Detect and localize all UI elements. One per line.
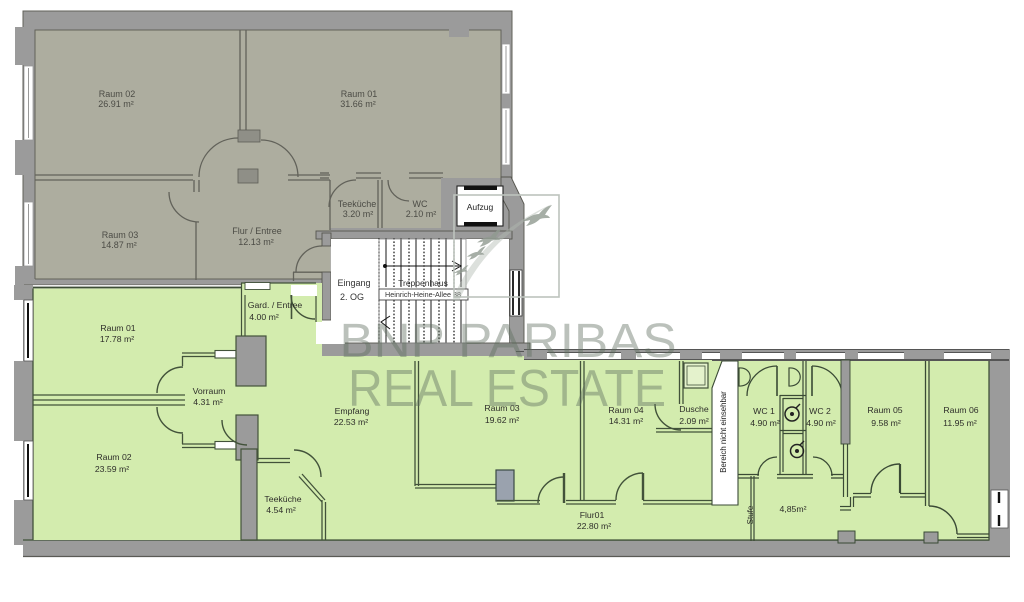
svg-text:Raum 02: Raum 02	[96, 452, 131, 462]
svg-text:Raum 01: Raum 01	[100, 323, 135, 333]
svg-text:4.54 m²: 4.54 m²	[266, 505, 296, 515]
svg-text:26.91 m²: 26.91 m²	[98, 99, 134, 109]
svg-text:Vorraum: Vorraum	[193, 386, 226, 396]
svg-text:2. OG: 2. OG	[340, 292, 364, 302]
svg-text:Raum 06: Raum 06	[943, 405, 978, 415]
svg-text:2.09 m²: 2.09 m²	[679, 416, 709, 426]
svg-text:Raum 01: Raum 01	[341, 89, 378, 99]
svg-text:3.20 m²: 3.20 m²	[343, 209, 374, 219]
svg-text:Teeküche: Teeküche	[338, 199, 377, 209]
svg-text:REAL ESTATE: REAL ESTATE	[348, 360, 666, 418]
svg-text:4.31 m²: 4.31 m²	[193, 397, 223, 407]
svg-text:WC 1: WC 1	[753, 406, 775, 416]
svg-text:Flur01: Flur01	[580, 510, 605, 520]
svg-text:Eingang: Eingang	[337, 278, 370, 288]
svg-text:WC: WC	[413, 199, 428, 209]
svg-text:Dusche: Dusche	[679, 404, 709, 414]
svg-text:12.13 m²: 12.13 m²	[238, 237, 274, 247]
svg-text:22.53 m²: 22.53 m²	[334, 417, 368, 427]
svg-text:23.59 m²: 23.59 m²	[95, 464, 129, 474]
svg-text:14.87 m²: 14.87 m²	[101, 240, 137, 250]
svg-text:4.00 m²: 4.00 m²	[249, 312, 279, 322]
svg-text:Raum 03: Raum 03	[102, 230, 139, 240]
svg-text:4.90 m²: 4.90 m²	[750, 418, 780, 428]
svg-text:Stufe: Stufe	[746, 505, 755, 524]
svg-text:2.10 m²: 2.10 m²	[406, 209, 437, 219]
svg-text:4,85m²: 4,85m²	[779, 504, 806, 514]
svg-text:WC 2: WC 2	[809, 406, 831, 416]
svg-text:Teeküche: Teeküche	[264, 494, 301, 504]
svg-text:22.80 m²: 22.80 m²	[577, 521, 611, 531]
svg-text:Bereich nicht einsehbar: Bereich nicht einsehbar	[719, 391, 728, 473]
svg-text:Flur / Entree: Flur / Entree	[232, 226, 282, 236]
svg-text:Raum 05: Raum 05	[867, 405, 902, 415]
svg-text:Gard. / Entree: Gard. / Entree	[248, 300, 303, 310]
svg-text:Raum 02: Raum 02	[99, 89, 136, 99]
svg-text:31.66 m²: 31.66 m²	[340, 99, 376, 109]
svg-text:Heinrich-Heine-Allee 38: Heinrich-Heine-Allee 38	[385, 290, 461, 299]
svg-text:11.95 m²: 11.95 m²	[943, 418, 977, 428]
svg-text:9.58 m²: 9.58 m²	[871, 418, 901, 428]
svg-text:17.78 m²: 17.78 m²	[100, 334, 134, 344]
svg-text:4.90 m²: 4.90 m²	[806, 418, 836, 428]
svg-text:Aufzug: Aufzug	[467, 202, 494, 212]
svg-text:Treppenhaus: Treppenhaus	[398, 278, 448, 288]
